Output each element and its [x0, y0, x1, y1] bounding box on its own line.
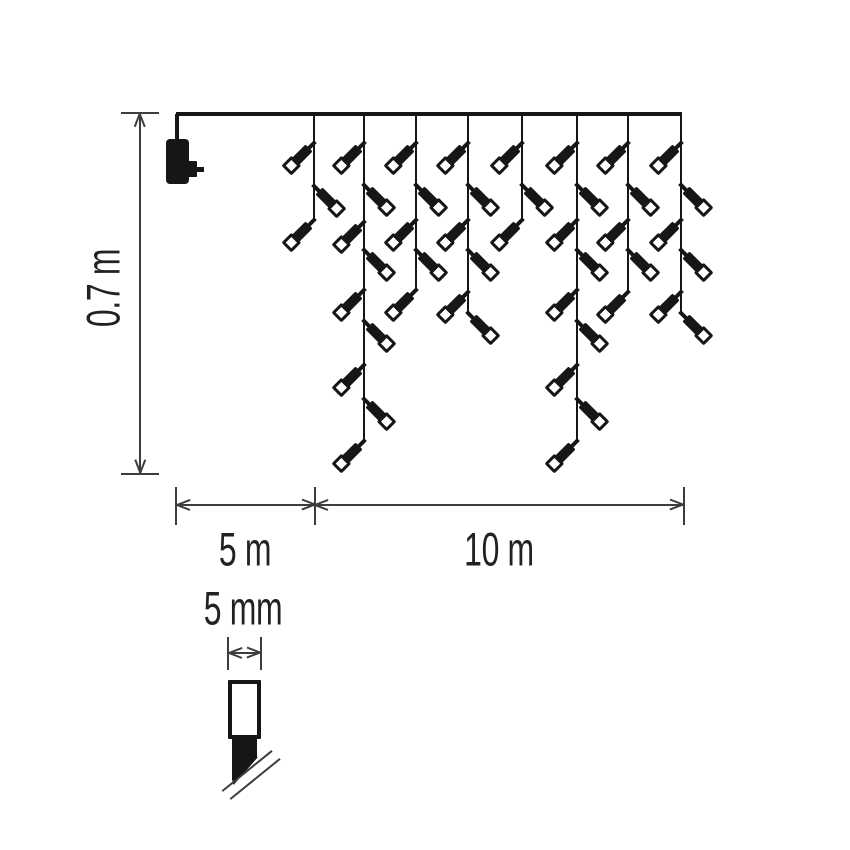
bulb-detail-base [232, 738, 257, 758]
main-wire-line [176, 112, 682, 115]
bulb-detail-lens [228, 680, 261, 739]
span-extension-tick [683, 487, 684, 525]
drop-wire [363, 114, 366, 442]
drop-wire [576, 114, 579, 442]
diagram-canvas: 0.7 m 5 m 10 m 5 mm [0, 0, 850, 850]
led-bulb [462, 307, 504, 349]
power-adapter [166, 139, 189, 184]
lit-length-label: 10 m [464, 526, 534, 573]
span-dimension-line [176, 504, 684, 505]
led-bulb [328, 435, 370, 477]
bulb-width-label: 5 mm [204, 585, 283, 632]
height-dimension-label: 0.7 m [80, 249, 127, 327]
drop-wire [521, 114, 524, 221]
led-bulb [278, 214, 320, 256]
drop-wire [313, 114, 316, 221]
adapter-prong [196, 167, 204, 172]
adapter-cord [175, 114, 178, 141]
led-bulb [541, 435, 583, 477]
height-dimension-line [139, 113, 140, 474]
span-extension-tick [175, 487, 176, 525]
led-bulb [675, 307, 717, 349]
led-bulb [592, 286, 634, 328]
lead-length-label: 5 m [219, 526, 271, 573]
led-bulb [380, 284, 422, 326]
